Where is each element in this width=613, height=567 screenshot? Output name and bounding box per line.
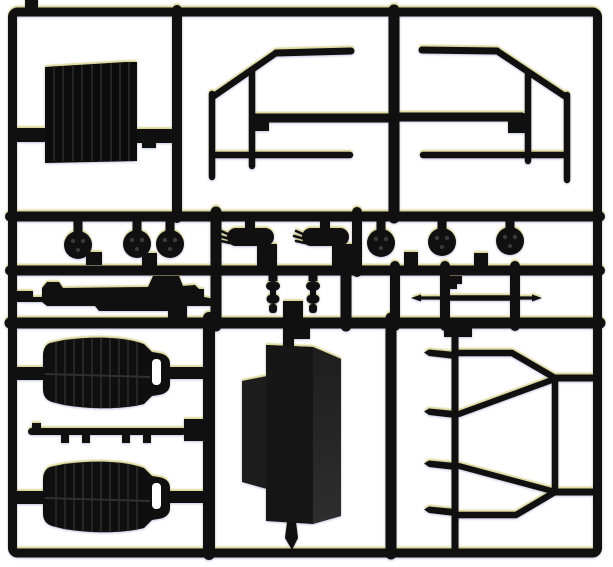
shock-absorber-1 <box>266 274 280 313</box>
cage-spike-2 <box>424 409 455 419</box>
model-kit-sprue-photo <box>0 0 613 567</box>
ribbed-panel-part <box>16 62 172 163</box>
sprue-illustration <box>0 0 613 567</box>
panel-left-gate <box>16 128 46 142</box>
hub-tab-1 <box>86 252 102 265</box>
rear-cage-frame-part <box>424 327 598 550</box>
tank-side-flap <box>242 376 267 489</box>
window-frame-right-part <box>394 50 567 180</box>
hub-tab-2 <box>142 253 157 267</box>
window-frame-left-part <box>212 51 390 177</box>
bucket-seat-1 <box>13 334 208 412</box>
wheel-hubs-left <box>64 215 184 267</box>
tank-front-face <box>266 345 313 524</box>
hub-tab-4 <box>474 253 488 267</box>
cage-brace-top <box>459 380 552 414</box>
chassis-gate <box>168 306 187 319</box>
chassis-rail-part <box>17 276 214 319</box>
side-sill-rod-part <box>28 419 206 443</box>
panel-gate-block <box>142 131 156 148</box>
bucket-seat-2 <box>13 458 208 536</box>
shock-block <box>283 301 303 318</box>
sill-rod-gate <box>184 419 206 441</box>
cage-spike-3 <box>424 461 455 471</box>
hub-tab-3 <box>404 252 418 266</box>
tank-side-face <box>313 347 341 524</box>
cage-brace-bottom <box>459 466 552 491</box>
sprue-top-tab <box>25 0 38 13</box>
tank-bottom-gate <box>285 522 298 550</box>
cage-spike-1 <box>424 350 455 360</box>
fuel-tank-box-part <box>242 322 341 550</box>
cage-spike-4 <box>424 507 455 517</box>
shock-absorber-2 <box>306 274 320 313</box>
axle-rod-part <box>411 276 542 302</box>
